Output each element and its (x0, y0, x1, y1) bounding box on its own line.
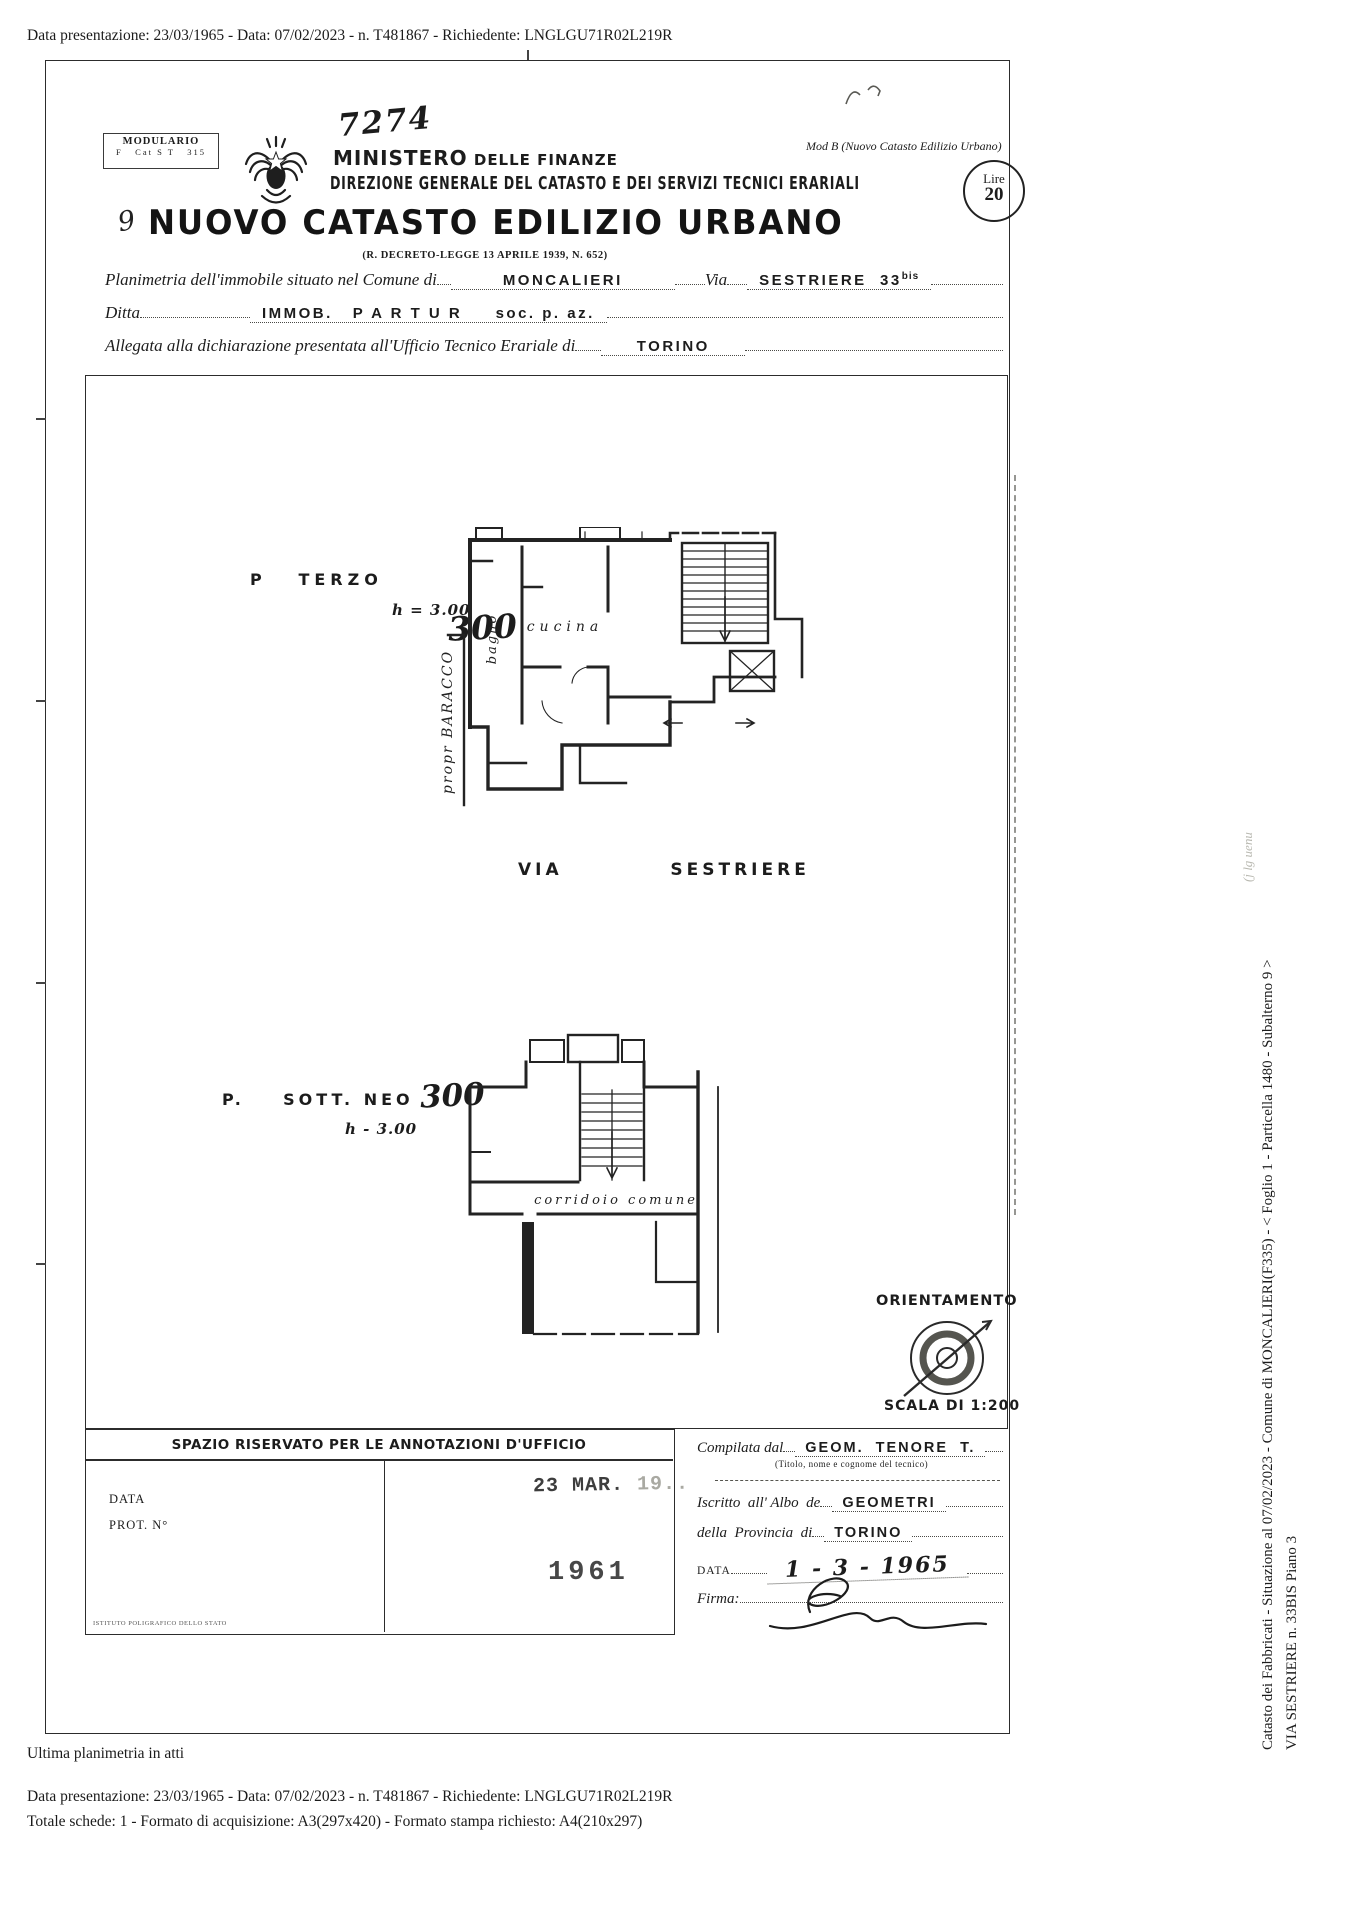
state-eagle-emblem-icon (243, 130, 309, 210)
albo-value: GEOMETRI (832, 1495, 945, 1512)
border-tick (36, 700, 46, 702)
stamp-date-faint: 19.. (624, 1473, 689, 1497)
annotations-header: SPAZIO RISERVATO PER LE ANNOTAZIONI D'UF… (85, 1437, 673, 1453)
floor-label-terzo: P TERZO (250, 570, 383, 589)
corridor-label: corridoio comune (534, 1193, 698, 1208)
floor-plan-terzo: bagno cucina propr BARACCO (430, 527, 825, 827)
signature-scribble (762, 1560, 992, 1645)
direction-title: DIREZIONE GENERALE DEL CATASTO E DEI SER… (330, 174, 860, 194)
modulario-box: MODULARIO F Cat S T 315 (103, 133, 219, 169)
modulario-title: MODULARIO (104, 136, 218, 147)
ministry-sub: DELLE FINANZE (468, 151, 618, 169)
dotted-rule (820, 1492, 832, 1507)
ufficio-value: TORINO (601, 338, 745, 356)
top-info-line: Data presentazione: 23/03/1965 - Data: 0… (27, 27, 672, 45)
printer-imprint: ISTITUTO POLIGRAFICO DELLO STATO (93, 1620, 227, 1627)
owner-label-propr-baracco: propr BARACCO (440, 650, 456, 794)
compiled-by-row: Compilata dal GEOM. TENORE T. (697, 1437, 1003, 1457)
faint-margin-note: (j lg uenu (1240, 772, 1256, 882)
ditta-value: IMMOB. P A R T U R soc. p. az. (250, 305, 607, 323)
border-tick (36, 418, 46, 420)
scale-label: SCALA DI 1:200 (884, 1398, 1020, 1414)
dotted-rule (675, 270, 705, 285)
dotted-rule (140, 303, 250, 318)
border-tick (527, 50, 529, 60)
lire-20-stamp: Lire 20 (963, 160, 1025, 222)
year-stamp: 1961 (548, 1558, 629, 1588)
floor-plan-sotterraneo: corridoio comune (430, 1032, 810, 1342)
form-line-comune: Planimetria dell'immobile situato nel Co… (105, 270, 1003, 290)
annotations-rule (86, 1459, 673, 1461)
footer-line1: Data presentazione: 23/03/1965 - Data: 0… (27, 1788, 672, 1806)
lire-value: 20 (965, 185, 1023, 204)
modulario-code: F Cat S T 315 (104, 147, 218, 157)
mod-b-note: Mod B (Nuovo Catasto Edilizio Urbano) (806, 139, 1002, 154)
dotted-rule (812, 1522, 824, 1537)
dotted-rule (727, 270, 747, 285)
firma-label: Firma: (697, 1591, 740, 1608)
dotted-rule (946, 1492, 1003, 1507)
room-label-bagno: bagno (485, 614, 500, 665)
prot-label: PROT. N° (109, 1518, 168, 1533)
dotted-rule (912, 1522, 1003, 1537)
provincia-label: della Provincia di (697, 1525, 812, 1542)
fold-dashed-line (1014, 475, 1016, 1215)
border-tick (36, 1263, 46, 1265)
decree-subtitle: (R. DECRETO-LEGGE 13 APRILE 1939, N. 652… (85, 250, 885, 261)
form-line-ditta: Ditta IMMOB. P A R T U R soc. p. az. (105, 303, 1003, 323)
planimetria-label: Planimetria dell'immobile situato nel Co… (105, 270, 437, 290)
dotted-rule (783, 1437, 795, 1452)
footer-ultima: Ultima planimetria in atti (27, 1745, 184, 1763)
register-row: Iscritto all' Albo de GEOMETRI (697, 1492, 1003, 1512)
iscritto-label: Iscritto all' Albo de (697, 1495, 820, 1512)
orientation-title: ORIENTAMENTO (876, 1293, 1018, 1309)
pencil-mark (842, 80, 886, 112)
dotted-rule (931, 270, 1003, 285)
ditta-label: Ditta (105, 303, 140, 323)
dotted-rule (437, 270, 451, 285)
side-address-line: VIA SESTRIERE n. 33BIS Piano 3 (1284, 785, 1301, 1750)
dash-rule (715, 1480, 1000, 1481)
via-value: SESTRIERE 33bis (747, 271, 931, 290)
document-title: NUOVO CATASTO EDILIZIO URBANO (148, 203, 844, 243)
compilata-label: Compilata dal (697, 1440, 783, 1457)
scanned-cadastral-document: Data presentazione: 23/03/1965 - Data: 0… (0, 0, 1357, 1920)
stamp-date-text: 23 MAR. (533, 1474, 624, 1499)
comune-value: MONCALIERI (451, 272, 675, 290)
dotted-rule (607, 303, 1003, 318)
dotted-rule (985, 1437, 1003, 1452)
ministry-name: MINISTERO (333, 146, 468, 170)
compiler-data-label: DATA (697, 1565, 731, 1577)
floor-label-sott: P. SOTT. NEO (222, 1090, 414, 1109)
dotted-rule (575, 336, 601, 351)
allegata-label: Allegata alla dichiarazione presentata a… (105, 336, 575, 356)
border-tick (36, 982, 46, 984)
orientation-compass-icon (898, 1314, 996, 1400)
annotations-divider (384, 1460, 385, 1632)
via-bis-superscript: bis (902, 271, 919, 282)
via-label: Via (705, 270, 727, 290)
compiler-title-note: (Titolo, nome e cognome del tecnico) (775, 1459, 928, 1469)
compiler-name: GEOM. TENORE T. (795, 1440, 985, 1457)
room-label-cucina: cucina (527, 619, 604, 635)
form-line-ufficio: Allegata alla dichiarazione presentata a… (105, 336, 1003, 356)
street-label-via-sestriere: VIA SESTRIERE (518, 860, 810, 880)
data-label: DATA (109, 1492, 145, 1507)
ministry-title: MINISTERO DELLE FINANZE (333, 146, 618, 170)
provincia-value: TORINO (824, 1525, 912, 1542)
side-catasto-line: Catasto dei Fabbricati - Situazione al 0… (1260, 785, 1277, 1750)
via-street: SESTRIERE 33 (759, 272, 902, 289)
date-stamp: 23 MAR. 19.. (533, 1473, 689, 1499)
dotted-rule (745, 336, 1003, 351)
province-row: della Provincia di TORINO (697, 1522, 1003, 1542)
height-label-sott: h - 3.00 (345, 1120, 417, 1138)
footer-line2: Totale schede: 1 - Formato di acquisizio… (27, 1813, 642, 1831)
